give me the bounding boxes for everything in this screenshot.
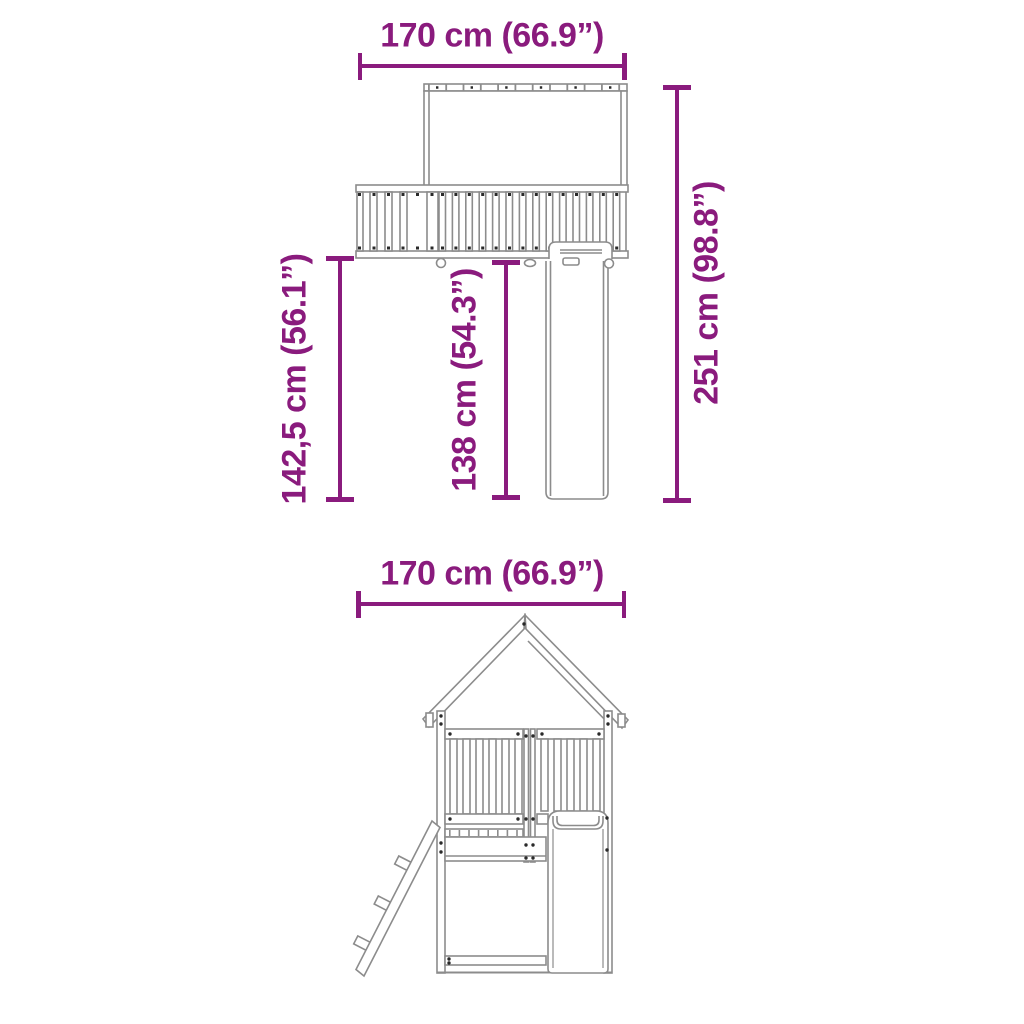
dim-label-side-width: 170 cm (66.9”) bbox=[380, 17, 604, 56]
dim-tick bbox=[622, 53, 627, 80]
dim-tick bbox=[663, 85, 691, 90]
dim-line bbox=[504, 262, 508, 498]
dim-line bbox=[675, 87, 679, 501]
front-view-drawing bbox=[354, 615, 628, 976]
product-dimension-diagram: 170 cm (66.9”) 251 cm (98.8”) 142,5 cm (… bbox=[0, 0, 1024, 1024]
dim-tick bbox=[356, 591, 361, 618]
dim-tick bbox=[622, 591, 627, 618]
dim-tick bbox=[492, 495, 520, 500]
dim-line bbox=[358, 602, 624, 606]
dim-tick bbox=[358, 53, 363, 80]
dim-label-side-slide-height: 138 cm (54.3”) bbox=[446, 268, 485, 492]
dim-tick bbox=[326, 256, 354, 261]
dim-line bbox=[338, 258, 342, 500]
dim-tick bbox=[326, 497, 354, 502]
dim-label-side-total-height: 251 cm (98.8”) bbox=[688, 181, 727, 405]
dim-tick bbox=[663, 498, 691, 503]
dim-tick bbox=[492, 260, 520, 265]
side-view-drawing bbox=[356, 84, 628, 499]
dim-label-front-width: 170 cm (66.9”) bbox=[380, 555, 604, 594]
dim-line bbox=[360, 64, 624, 68]
playset-line-drawing bbox=[0, 0, 1024, 1024]
dim-label-side-platform-height: 142,5 cm (56.1”) bbox=[276, 254, 315, 505]
